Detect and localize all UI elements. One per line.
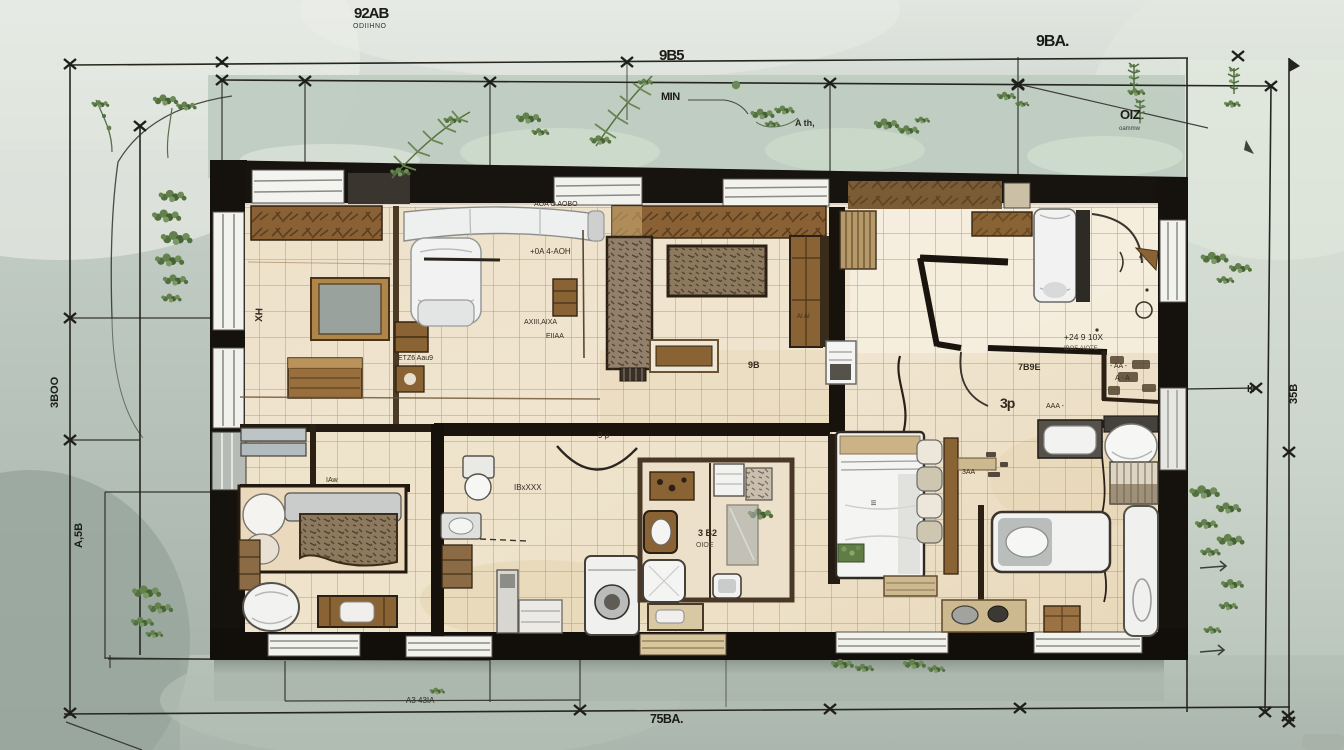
svg-text:A3 43IA: A3 43IA: [406, 696, 435, 705]
svg-text:A,5B: A,5B: [73, 523, 85, 548]
svg-text:9BA.: 9BA.: [1036, 33, 1069, 50]
svg-text:3AA: 3AA: [962, 469, 976, 476]
svg-text:OIZ: OIZ: [1120, 107, 1141, 122]
svg-text:III: III: [869, 500, 876, 506]
svg-text:3p: 3p: [1000, 395, 1015, 411]
svg-text:9B: 9B: [748, 360, 760, 370]
svg-text:75BA.: 75BA.: [650, 712, 683, 726]
svg-text:3 B2: 3 B2: [698, 528, 717, 538]
svg-text:9 p: 9 p: [598, 431, 610, 440]
svg-text:7B9E: 7B9E: [1018, 362, 1041, 372]
svg-text:92AB: 92AB: [354, 5, 390, 22]
svg-text:A - A: A - A: [1115, 375, 1130, 382]
svg-text:- AA -: - AA -: [1110, 363, 1128, 370]
svg-text:3BOO: 3BOO: [49, 376, 61, 408]
svg-text:K: K: [1247, 384, 1255, 395]
svg-text:AXIII,AIXA: AXIII,AIXA: [524, 319, 557, 326]
svg-text:OIOE: OIOE: [696, 542, 714, 549]
svg-text:MIN: MIN: [661, 91, 680, 103]
svg-text:IBOE AIOTE: IBOE AIOTE: [1064, 346, 1098, 352]
svg-text:IAw: IAw: [326, 477, 338, 484]
svg-text:XH: XH: [254, 308, 265, 322]
svg-text:EIIAA: EIIAA: [546, 333, 564, 340]
svg-text:IBxXXX: IBxXXX: [514, 483, 542, 492]
svg-text:ETZ6 Aau9: ETZ6 Aau9: [398, 355, 433, 362]
svg-text:A th,: A th,: [795, 118, 815, 128]
svg-text:+24 9 10X: +24 9 10X: [1064, 332, 1103, 342]
svg-text:AAA -: AAA -: [1046, 403, 1065, 410]
svg-text:ODIIHNO: ODIIHNO: [353, 23, 387, 30]
svg-text:AI AI: AI AI: [797, 314, 810, 320]
svg-text:+0A 4-AOH: +0A 4-AOH: [530, 247, 571, 256]
svg-text:9B5: 9B5: [659, 47, 684, 64]
svg-text:AOA O AOBO: AOA O AOBO: [534, 201, 578, 208]
svg-text:35B: 35B: [1288, 384, 1300, 404]
svg-text:oammw: oammw: [1119, 126, 1141, 132]
